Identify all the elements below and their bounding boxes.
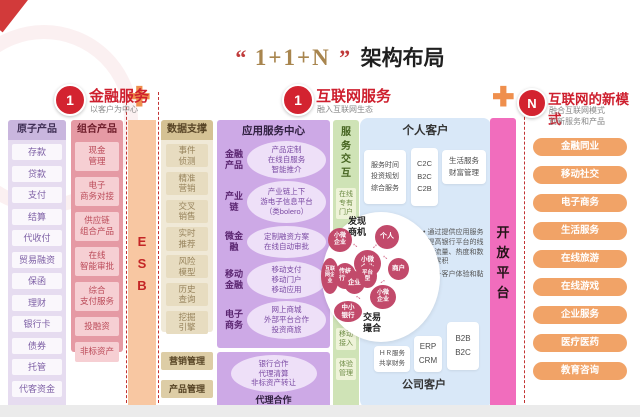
mode-item-enterprise-services: 企业服务 (533, 306, 627, 324)
erp-crm-box: ERP CRM (414, 336, 442, 372)
composite-item: 供应链 组合产品 (75, 212, 119, 241)
bubble-platform: 平台 型 (358, 264, 377, 288)
atomic-item: 贷款 (12, 166, 62, 182)
experience-management-box: 体验 管理 (336, 358, 356, 380)
atomic-item: 银行卡 (12, 316, 62, 332)
agency-desc: 银行合作 代理清算 非标资产转让 (231, 355, 317, 392)
atomic-products-header: 原子产品 (8, 120, 66, 140)
bubble-smb: 小微 企业 (328, 228, 352, 252)
atomic-item: 支付 (12, 187, 62, 203)
data-support-item: 交叉 销售 (166, 200, 208, 223)
title-quote-close: ” (339, 45, 350, 70)
product-management-box: 产品管理 (161, 380, 213, 398)
composite-products-column: 组合产品 现金 管理 电子 商务对接 供应链 组合产品 在线 智能审批 综合 支… (71, 120, 123, 352)
atomic-item: 托管 (12, 359, 62, 375)
composite-item: 投融资 (75, 317, 119, 336)
data-support-item: 事件 侦测 (166, 144, 208, 167)
app-service-center-header: 应用服务中心 (217, 120, 330, 140)
composite-item: 非标资产 (75, 342, 119, 361)
mode-item-education: 教育咨询 (533, 362, 627, 380)
bubble-merchant: 商户 (388, 258, 409, 280)
data-support-header: 数据支撑 (161, 120, 213, 140)
composite-item: 电子 商务对接 (75, 177, 119, 206)
app-row-label: 电子 商务 (221, 309, 247, 331)
atomic-item: 贸易融资 (12, 252, 62, 268)
app-row-desc: 移动支付 移动门户 移动应用 (247, 261, 326, 299)
atomic-item: 存款 (12, 144, 62, 160)
bottom-strip (0, 405, 640, 417)
service-interaction-header: 服 务 交 互 (333, 120, 359, 180)
composite-products-header: 组合产品 (71, 120, 123, 140)
deal-matching-label: 交易 撮合 (363, 312, 381, 334)
architecture-diagram: “ 1+1+N ” 架构布局 1 金融服务 以客户为中心 ✚ 1 互联网服务 融… (0, 0, 640, 417)
data-support-item: 实时 推荐 (166, 227, 208, 250)
divider (524, 92, 525, 408)
c2c-box: C2C B2C C2B (411, 148, 438, 206)
hr-services-box: ＨＲ服务 共享财务 (374, 346, 410, 372)
atomic-item: 结算 (12, 209, 62, 225)
bubble-small-bank: 中小 银行 (334, 301, 362, 322)
data-support-item: 精准 营销 (166, 172, 208, 195)
life-service-box: 生活服务 财富管理 (442, 150, 486, 184)
title-quote-open: “ (235, 45, 246, 70)
composite-item: 现金 管理 (75, 142, 119, 171)
app-row-desc: 产品定制 在线自服务 智能推介 (247, 141, 326, 179)
agency-cooperation-box: 银行合作 代理清算 非标资产转让 代理合作 (217, 352, 330, 408)
mode-item-life-services: 生活服务 (533, 222, 627, 240)
atomic-products-column: 原子产品 存款 贷款 支付 结算 代收付 贸易融资 保函 理财 银行卡 债券 托… (8, 120, 66, 408)
service-time-box: 服务时间 投资规划 综合服务 (364, 150, 406, 204)
internet-section-title: 互联网服务 (316, 85, 391, 106)
page-title: “ 1+1+N ” 架构布局 (215, 42, 465, 72)
internet-badge-icon: 1 (282, 84, 314, 116)
new-modes-badge-icon: N (517, 88, 547, 118)
data-support-column: 数据支撑 事件 侦测 精准 营销 交叉 销售 实时 推荐 风险 模型 历史 查询… (161, 120, 213, 332)
title-main: 1+1+N (255, 45, 331, 70)
app-row-desc: 产业链上下 游电子信息平台 （类bolero） (247, 181, 326, 223)
personal-customer-header: 个人客户 (360, 118, 491, 142)
open-platform-bar: 开 放 平 台 (490, 118, 516, 408)
app-row-desc: 定制融资方案 在线自动审批 (247, 226, 326, 258)
title-suffix: 架构布局 (361, 46, 445, 70)
financial-section-subtitle: 以客户为中心 (90, 104, 138, 115)
atomic-item: 保函 (12, 273, 62, 289)
online-portal-box: 在线 专有 门户 (336, 188, 356, 219)
mode-item-medical: 医疗医药 (533, 334, 627, 352)
data-support-item: 风险 模型 (166, 255, 208, 278)
internet-section-subtitle: 融入互联网生态 (317, 104, 373, 115)
data-support-item: 历史 查询 (166, 283, 208, 306)
atomic-item: 代客资金 (12, 381, 62, 397)
corporate-customer-header: 公司客户 (392, 376, 456, 392)
atomic-item: 代收付 (12, 230, 62, 246)
app-row-label: 金融 产品 (221, 149, 247, 171)
atomic-item: 债券 (12, 338, 62, 354)
atomic-item: 理财 (12, 295, 62, 311)
divider (158, 92, 159, 408)
composite-item: 综合 支付服务 (75, 282, 119, 311)
app-row-label: 产业 链 (221, 191, 247, 213)
mode-item-online-games: 在线游戏 (533, 278, 627, 296)
financial-badge-icon: 1 (54, 84, 86, 116)
plus-icon: ✚ (492, 84, 515, 111)
app-row-label: 微金 融 (221, 231, 247, 253)
marketing-management-box: 营销管理 (161, 352, 213, 370)
new-modes-section-subtitle: 融合互联网模式 创新服务和产品 (549, 105, 605, 127)
data-support-item: 挖掘 引擎 (166, 311, 208, 334)
mode-item-mobile-social: 移动社交 (533, 166, 627, 184)
app-service-center-column: 应用服务中心 金融 产品 产品定制 在线自服务 智能推介 产业 链 产业链上下 … (217, 120, 330, 348)
mode-item-ecommerce: 电子商务 (533, 194, 627, 212)
financial-section-title: 金融服务 (89, 85, 149, 106)
esb-bus: E S B (128, 120, 156, 408)
app-row-desc: 网上商城 外部平台合作 投资商旅 (247, 301, 326, 339)
agency-label: 代理合作 (217, 392, 330, 406)
composite-item: 在线 智能审批 (75, 247, 119, 276)
mode-item-online-travel: 在线旅游 (533, 250, 627, 268)
divider (126, 92, 127, 408)
mode-item-finance-interbank: 金融同业 (533, 138, 627, 156)
app-row-label: 移动 金融 (221, 269, 247, 291)
bubble-smb: 小微 企业 (370, 285, 396, 309)
b2b-box: B2B B2C (447, 322, 479, 370)
